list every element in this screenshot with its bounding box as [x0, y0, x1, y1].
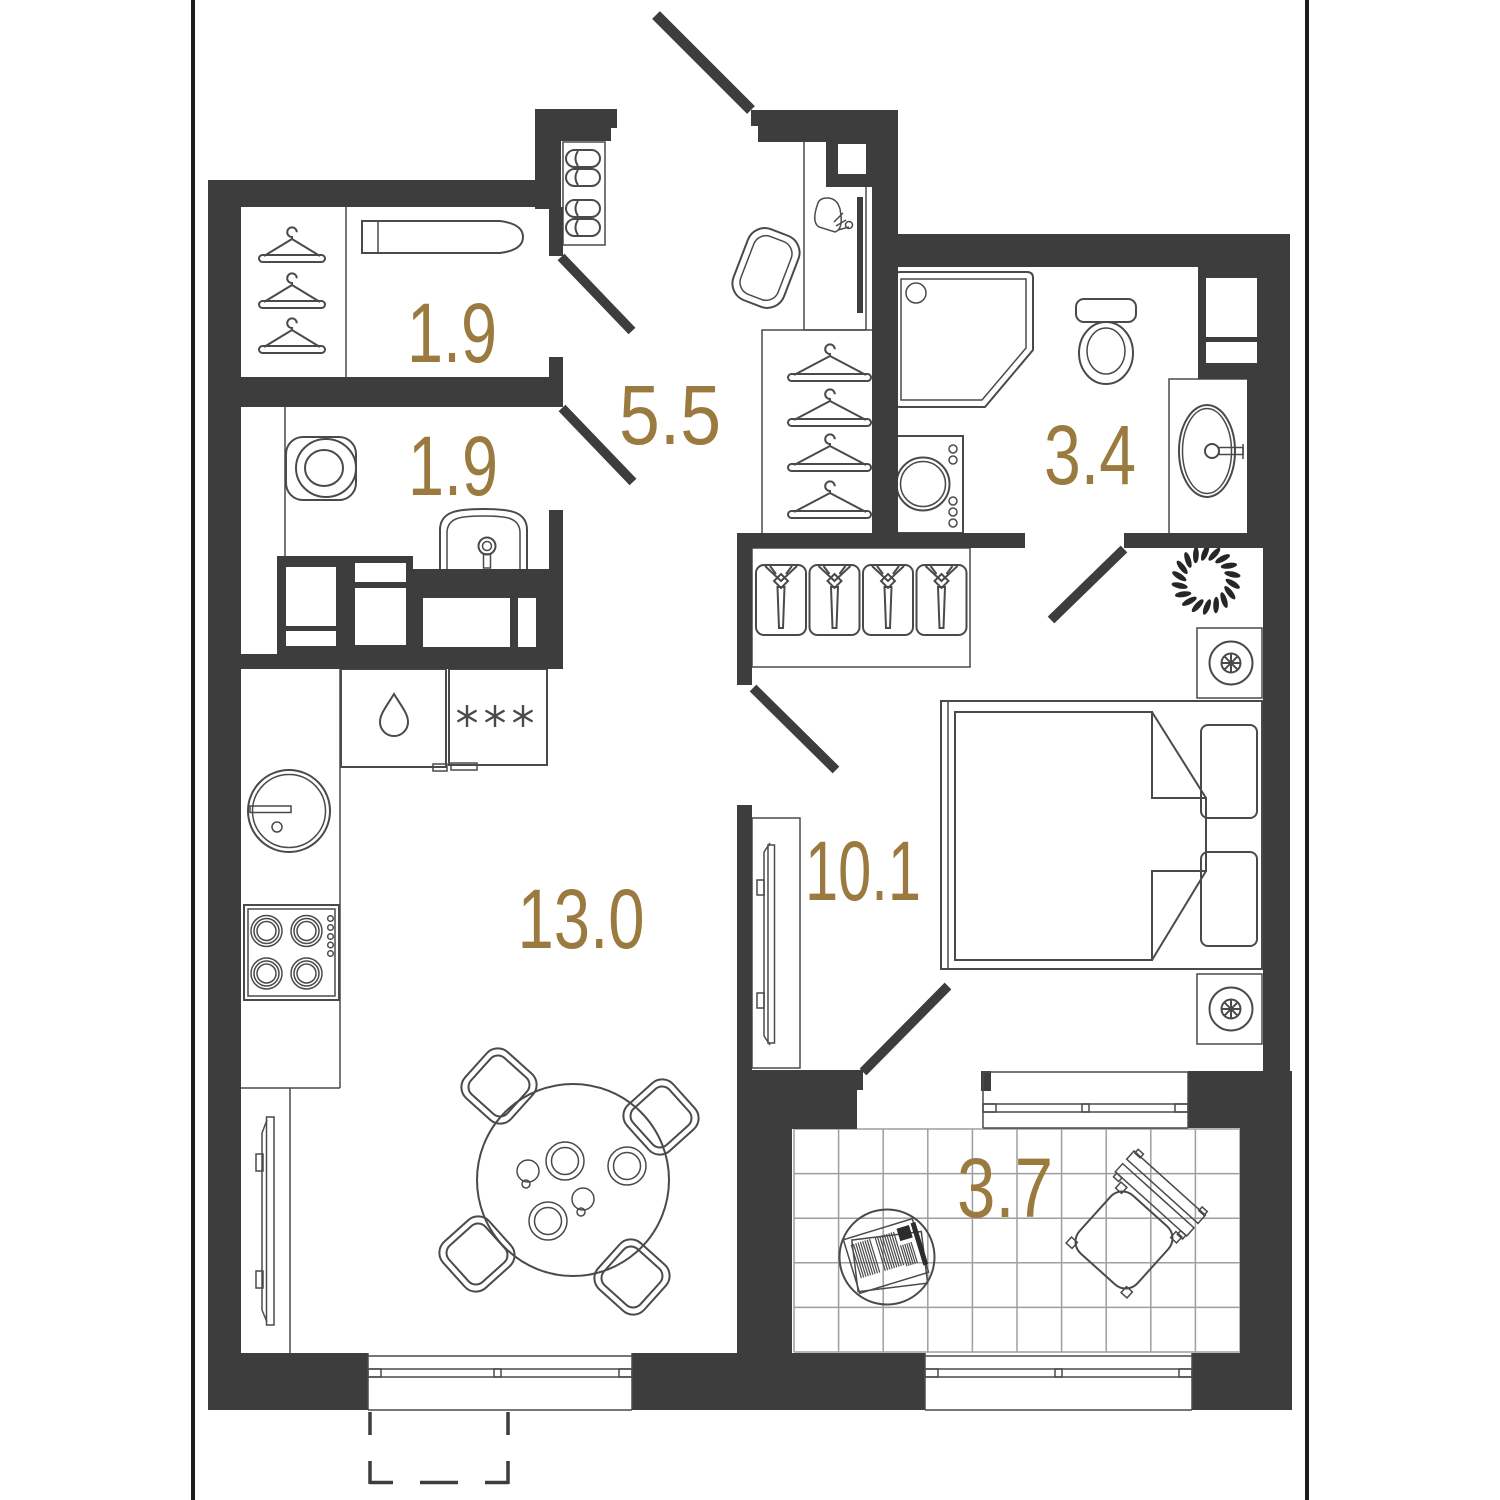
svg-text:3.7: 3.7 — [957, 1141, 1053, 1235]
svg-text:13.0: 13.0 — [518, 872, 645, 966]
svg-text:3.4: 3.4 — [1044, 408, 1136, 502]
svg-text:1.9: 1.9 — [407, 286, 497, 380]
svg-text:1.9: 1.9 — [408, 419, 498, 513]
svg-text:10.1: 10.1 — [805, 824, 921, 918]
svg-text:5.5: 5.5 — [619, 368, 721, 462]
